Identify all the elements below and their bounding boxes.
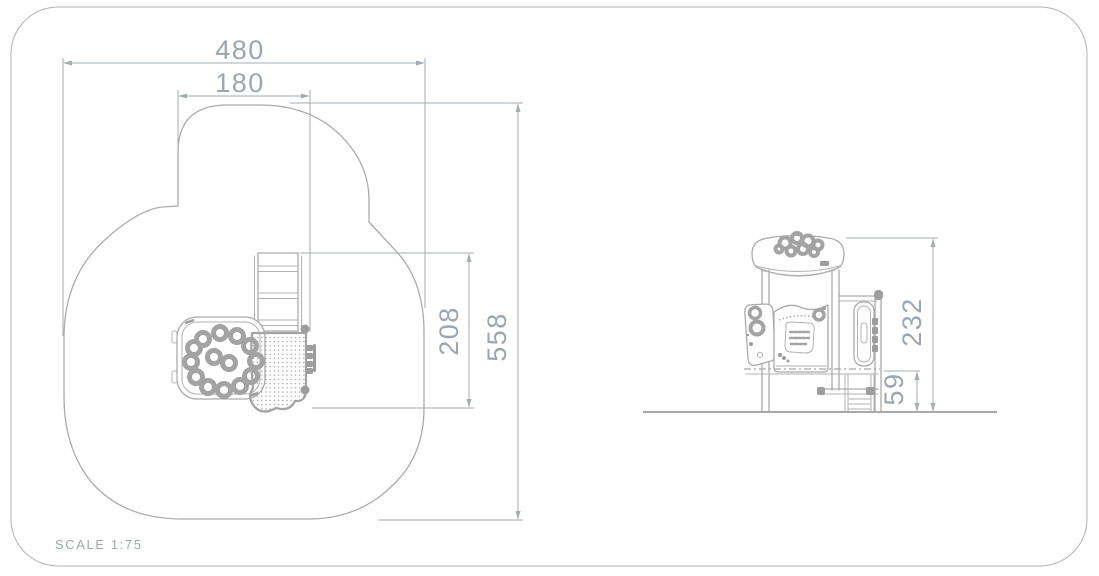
elevation-roof: [752, 233, 844, 276]
plan-safety-area-outline: [64, 105, 424, 519]
elevation-play-panel: [774, 305, 828, 372]
elevation-side-flange: [745, 304, 775, 365]
dim-inner-depth: 208: [300, 253, 474, 408]
plan-platform-tab: [172, 331, 177, 343]
dim-overall-height-label: 232: [897, 297, 927, 347]
dim-platform-height-label: 59: [879, 372, 909, 405]
rail-post-cap: [874, 290, 883, 300]
elevation-rail: [839, 290, 883, 366]
plan-slide-pocket: [250, 333, 306, 412]
plan-ladder: [255, 253, 302, 331]
technical-drawing: 480 180 208 558: [0, 0, 1099, 576]
dim-overall-depth-label: 558: [482, 312, 512, 362]
roof-tag: [820, 261, 829, 266]
elevation-view: [643, 233, 997, 412]
plan-view: [64, 105, 424, 519]
dim-platform-height: 59: [879, 371, 920, 412]
plan-platform-tab: [172, 371, 177, 383]
plan-dimensions: 480 180 208 558: [63, 35, 523, 520]
drawing-sheet: 480 180 208 558: [0, 0, 1099, 576]
dim-tower-width-label: 180: [215, 68, 265, 98]
scale-label: SCALE 1:75: [55, 537, 143, 552]
dim-overall-depth: 558: [290, 103, 523, 520]
dim-overall-width-label: 480: [215, 35, 265, 65]
dim-inner-depth-label: 208: [434, 306, 464, 356]
sheet-border: [11, 7, 1087, 566]
elevation-steps: [817, 374, 878, 411]
